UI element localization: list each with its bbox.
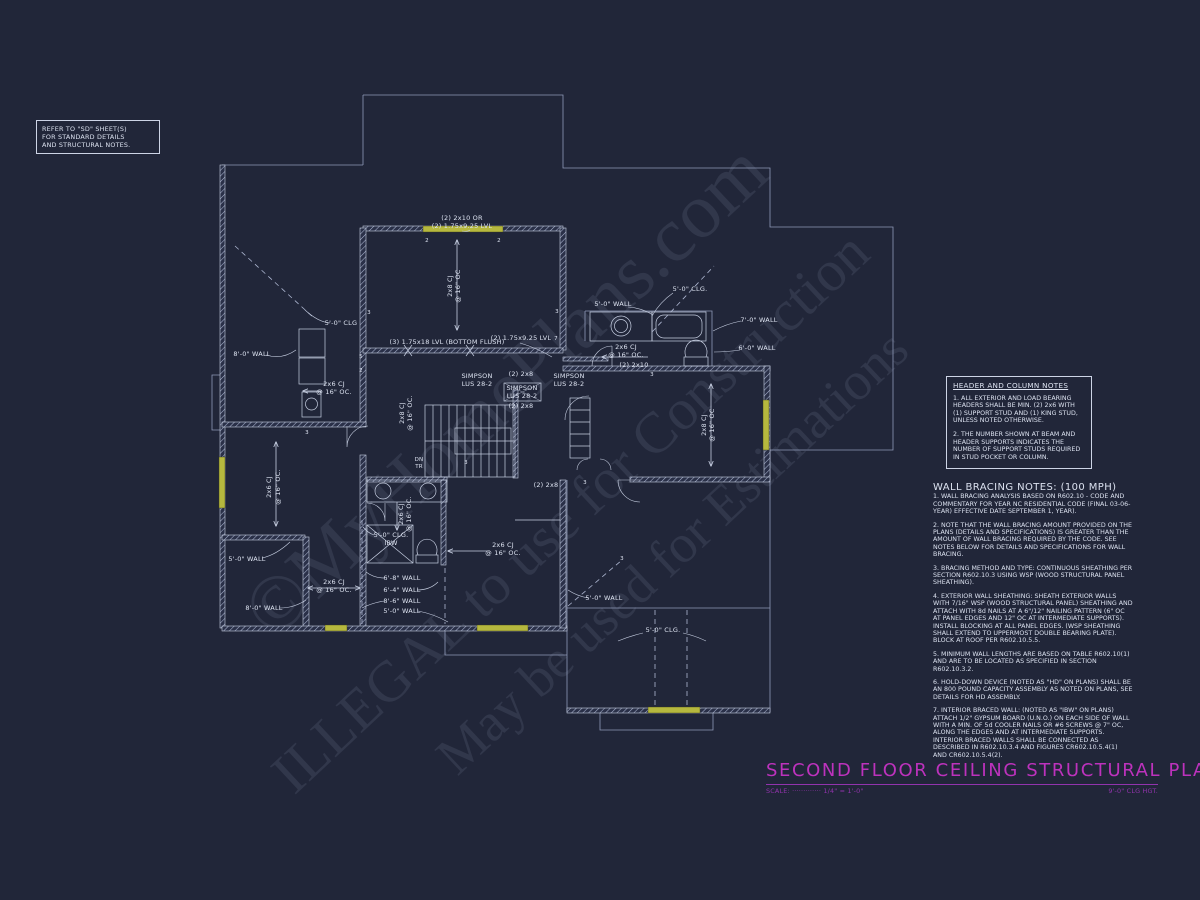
plan-label: @ 16" OC [454, 269, 462, 302]
plan-label: @ 16" OC [708, 408, 716, 441]
bracing-notes-body: 1. WALL BRACING ANALYSIS BASED ON R602.1… [933, 493, 1133, 759]
plan-label: 5'-0" WALL [585, 594, 622, 602]
reference-note-line: FOR STANDARD DETAILS [42, 133, 154, 141]
title-block: SECOND FLOOR CEILING STRUCTURAL PLAN SCA… [766, 760, 1158, 795]
plan-label: (2) 2x8 [509, 370, 534, 378]
plan-label: @ 16" OC. [316, 586, 351, 594]
stud-count-marker: 3 [555, 309, 559, 315]
highlight-header [648, 707, 700, 713]
wall-segment [360, 455, 366, 628]
dimension-arrows [276, 240, 711, 588]
plan-label: 2x6 CJ [492, 541, 514, 549]
stud-count-marker: 2 [497, 238, 501, 244]
sheet-title: SECOND FLOOR CEILING STRUCTURAL PLAN [766, 760, 1158, 785]
header-column-notes-box: HEADER AND COLUMN NOTES 1. ALL EXTERIOR … [946, 376, 1092, 469]
plan-label: (2) 2x8 [534, 481, 559, 489]
plan-label: LUS 28-2 [554, 380, 585, 388]
wall-segment [630, 477, 770, 482]
stud-count-marker: 3 [650, 372, 654, 378]
stud-count-marker: 3 [305, 430, 309, 436]
plan-label: @ 16" OC. [406, 395, 414, 430]
plan-label: @ 16" OC. [274, 469, 282, 504]
reference-note-line: REFER TO "SD" SHEET(S) [42, 125, 154, 133]
plan-label: 6'-4" WALL [383, 586, 420, 594]
plan-label: 8'-0" WALL [245, 604, 282, 612]
plan-label: SIMPSON [461, 372, 492, 380]
wall-bracing-notes: WALL BRACING NOTES: (100 MPH) 1. WALL BR… [933, 484, 1133, 765]
door-arcs [347, 346, 640, 521]
wall-segment [367, 477, 447, 482]
plan-label: LUS 28-2 [462, 380, 493, 388]
wall-segment [560, 480, 566, 628]
plan-label: (2) 2x10 [619, 361, 648, 369]
plan-label: 2x8 CJ [398, 402, 406, 424]
wall-bracing-notes-title: WALL BRACING NOTES: (100 MPH) [933, 484, 1133, 491]
reference-note-box: REFER TO "SD" SHEET(S) FOR STANDARD DETA… [36, 120, 160, 154]
plan-label: 2x6 CJ [323, 380, 345, 388]
scale-note: SCALE: ············· 1/4" = 1'-0" [766, 787, 864, 795]
plan-label: 2x8 CJ [446, 275, 454, 297]
note-paragraph: 2. THE NUMBER SHOWN AT BEAM AND HEADER S… [953, 431, 1085, 461]
plan-label: (2) 2x8 [509, 402, 534, 410]
wall-segment [563, 366, 770, 371]
plan-label: 5'-0" CLG. [646, 626, 681, 634]
stud-count-marker: 3 [464, 460, 468, 466]
plan-label: 5'-0" CLG. [374, 531, 409, 539]
note-paragraph: 2. NOTE THAT THE WALL BRACING AMOUNT PRO… [933, 522, 1133, 559]
header-column-notes-title: HEADER AND COLUMN NOTES [953, 382, 1085, 390]
note-paragraph: 3. BRACING METHOD AND TYPE: CONTINUOUS S… [933, 565, 1133, 587]
stud-count-marker: 3 [583, 480, 587, 486]
stud-count-marker: 3 [367, 310, 371, 316]
plan-label: 8'-6" WALL [383, 597, 420, 605]
yellow-highlights [219, 226, 769, 713]
plan-label: DN [415, 457, 424, 463]
plan-label: 5'-0" WALL [228, 555, 265, 563]
plan-label: (2) 2x10 OR [441, 214, 483, 222]
stud-count-marker: 2 [359, 368, 363, 374]
plan-label: 6'-8" WALL [383, 574, 420, 582]
highlight-header [763, 400, 769, 450]
plan-label: 5'-0" WALL [594, 300, 631, 308]
header-notes-body: 1. ALL EXTERIOR AND LOAD BEARING HEADERS… [953, 395, 1085, 462]
note-paragraph: 7. INTERIOR BRACED WALL: (NOTED AS "IBW"… [933, 707, 1133, 759]
highlight-header [477, 625, 528, 631]
highlight-header [325, 625, 347, 631]
plan-label: 2x8 CJ [700, 414, 708, 436]
plan-label: IBW [384, 539, 398, 547]
wall-segment [222, 422, 366, 427]
plan-label: 2x6 CJ [265, 476, 273, 498]
highlight-header [219, 457, 225, 508]
plan-label: @ 16" OC. [608, 351, 643, 359]
plan-label: @ 16" OC. [316, 388, 351, 396]
plan-label: SIMPSON [553, 372, 584, 380]
wall-segment [560, 228, 566, 350]
wall-segment [360, 228, 366, 424]
plan-label: (2) 1.75x9.25 LVL [432, 222, 493, 230]
plan-label: (3) 1.75x18 LVL (BOTTOM FLUSH) [390, 338, 505, 346]
plan-label: SIMPSON [506, 384, 537, 392]
stud-count-marker: 2 [425, 238, 429, 244]
stud-count-marker: 3 [620, 556, 624, 562]
plan-label: (2) 1.75x9.25 LVL [491, 334, 552, 342]
reference-note-line: AND STRUCTURAL NOTES. [42, 141, 154, 149]
note-paragraph: 4. EXTERIOR WALL SHEATHING: SHEATH EXTER… [933, 593, 1133, 645]
plan-label: 2x6 CJ [397, 503, 405, 525]
wall-segment [441, 480, 446, 565]
blueprint-page: { "ref_note": { "lines": [ "REFER TO \"S… [0, 0, 1200, 900]
plan-label: 5'-0" CLG. [673, 285, 708, 293]
plan-label: 7'-0" WALL [740, 316, 777, 324]
stud-count-marker: 7 [554, 336, 558, 342]
plan-label: 5'-0" CLG [325, 319, 357, 327]
plan-label: 6'-0" WALL [738, 344, 775, 352]
wall-segment [220, 165, 225, 628]
note-paragraph: 5. MINIMUM WALL LENGTHS ARE BASED ON TAB… [933, 651, 1133, 673]
ceiling-height-note: 9'-0" CLG HGT. [1108, 787, 1158, 795]
note-paragraph: 1. ALL EXTERIOR AND LOAD BEARING HEADERS… [953, 395, 1085, 425]
plan-label: 8'-0" WALL [233, 350, 270, 358]
plan-label: @ 16" OC. [405, 496, 413, 531]
wall-segment [222, 535, 305, 540]
plan-label: @ 16" OC. [485, 549, 520, 557]
roof-outline [212, 95, 893, 730]
beam-lvl [363, 348, 563, 353]
plan-label: 5'-0" WALL [383, 607, 420, 615]
plan-label: TR [414, 464, 423, 470]
note-paragraph: 1. WALL BRACING ANALYSIS BASED ON R602.1… [933, 493, 1133, 515]
note-paragraph: 6. HOLD-DOWN DEVICE (NOTED AS "HD" ON PL… [933, 679, 1133, 701]
wall-segment [303, 537, 309, 628]
plan-label: 2x6 CJ [323, 578, 345, 586]
beam-lvl [563, 357, 608, 361]
stud-count-marker: 5 [359, 354, 363, 360]
plan-label: LUS 28-2 [507, 392, 538, 400]
plan-label: 2x6 CJ [615, 343, 637, 351]
